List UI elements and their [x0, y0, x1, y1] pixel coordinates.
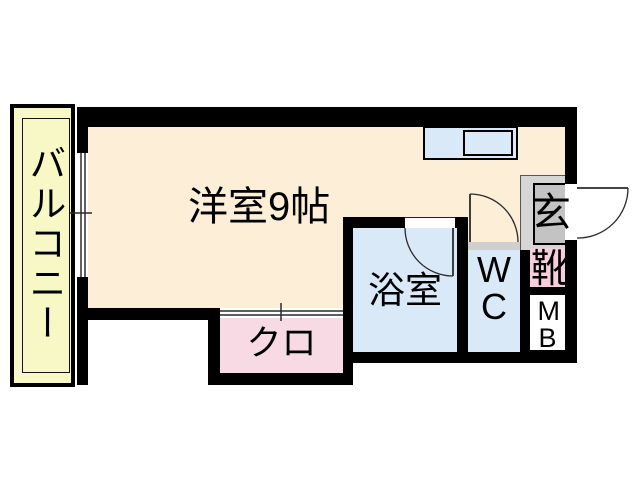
- main-room-label: 洋室9帖: [188, 186, 330, 228]
- floor-plan: バルコニー 洋室9帖 浴室 WC 玄 靴 MB クロ: [0, 0, 640, 480]
- bath-label: 浴室: [353, 272, 457, 311]
- door-swing-overlay: [0, 0, 640, 480]
- meter-box-label: MB: [530, 298, 565, 352]
- wc-label: WC: [466, 251, 522, 326]
- genkan-label: 玄: [531, 192, 571, 234]
- shoe-box-label: 靴: [531, 250, 570, 291]
- entrance-door-arc: [577, 188, 628, 238]
- bath-door-arc: [405, 228, 453, 276]
- balcony-label: バルコニー: [24, 144, 63, 384]
- wc-door-arc: [470, 194, 518, 242]
- closet-label: クロ: [220, 326, 343, 363]
